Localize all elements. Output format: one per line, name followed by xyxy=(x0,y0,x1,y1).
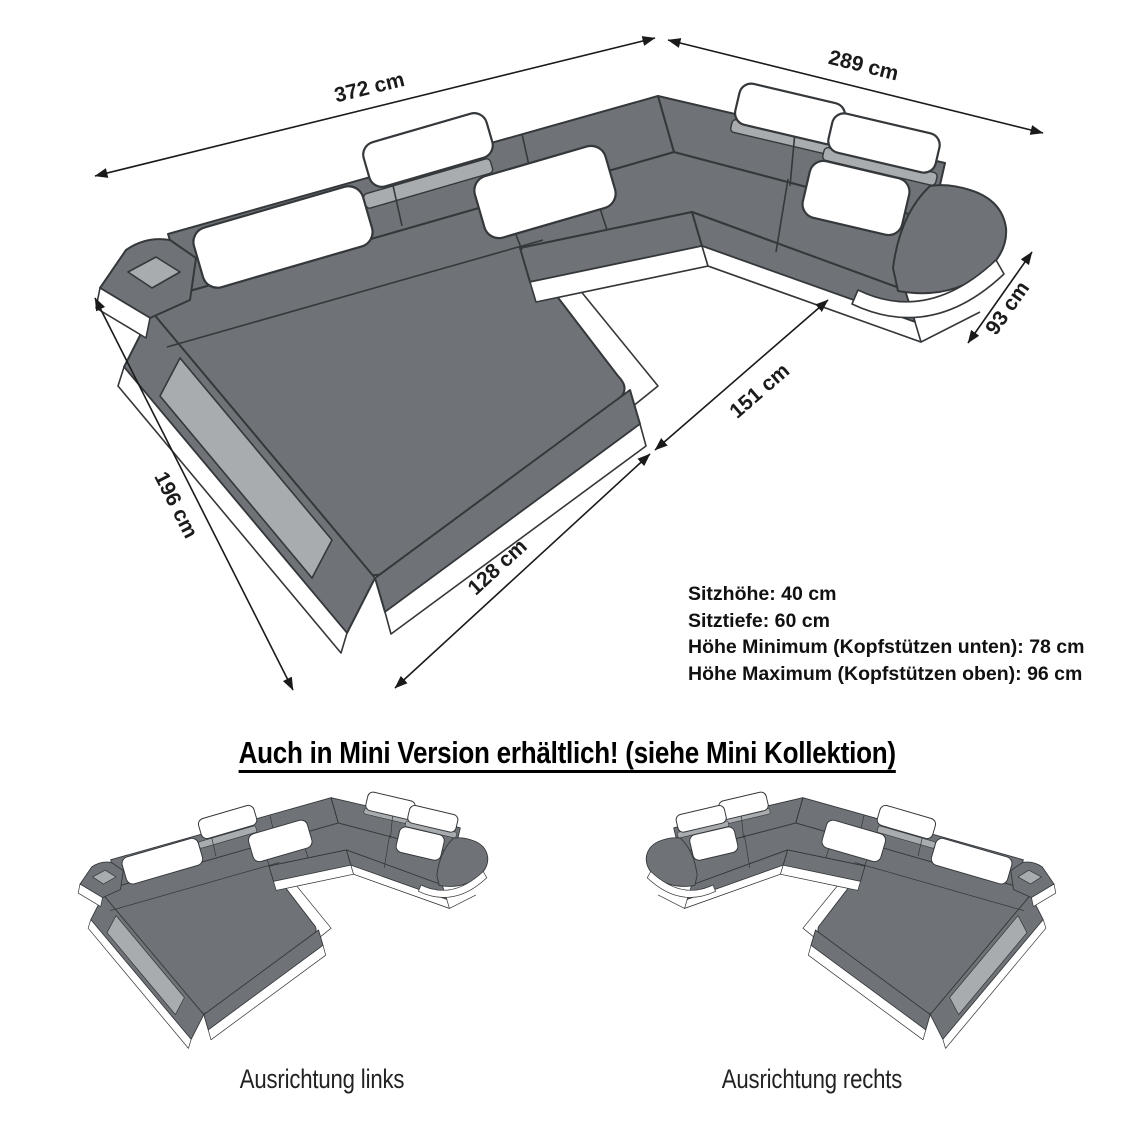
mini-sofa-left-drawing xyxy=(78,791,488,1048)
dim-label-left-depth: 196 cm xyxy=(149,468,202,542)
dim-label-right-width: 289 cm xyxy=(826,46,901,85)
orientation-left-label: Ausrichtung links xyxy=(222,1064,423,1095)
dim-label-inner-width: 151 cm xyxy=(725,359,794,423)
main-sofa-drawing xyxy=(96,81,1006,653)
spec-height-max: Höhe Maximum (Kopfstützen oben): 96 cm xyxy=(688,661,1085,688)
spec-seat-depth: Sitztiefe: 60 cm xyxy=(688,608,1085,635)
spec-seat-height: Sitzhöhe: 40 cm xyxy=(688,581,1085,608)
mini-version-heading: Auch in Mini Version erhältlich! (siehe … xyxy=(0,735,1134,771)
diagram-svg: 372 cm 289 cm 93 cm 151 cm 196 cm 128 cm xyxy=(0,0,1134,1134)
sofa-dimension-diagram: 372 cm 289 cm 93 cm 151 cm 196 cm 128 cm… xyxy=(0,0,1134,1134)
mini-version-heading-text: Auch in Mini Version erhältlich! (siehe … xyxy=(238,735,895,771)
orientation-right-label: Ausrichtung rechts xyxy=(702,1064,922,1095)
dim-line-inner-width xyxy=(655,300,828,450)
mini-sofa-right-drawing xyxy=(646,791,1056,1048)
spec-text-block: Sitzhöhe: 40 cm Sitztiefe: 60 cm Höhe Mi… xyxy=(688,581,1085,687)
spec-height-min: Höhe Minimum (Kopfstützen unten): 78 cm xyxy=(688,634,1085,661)
